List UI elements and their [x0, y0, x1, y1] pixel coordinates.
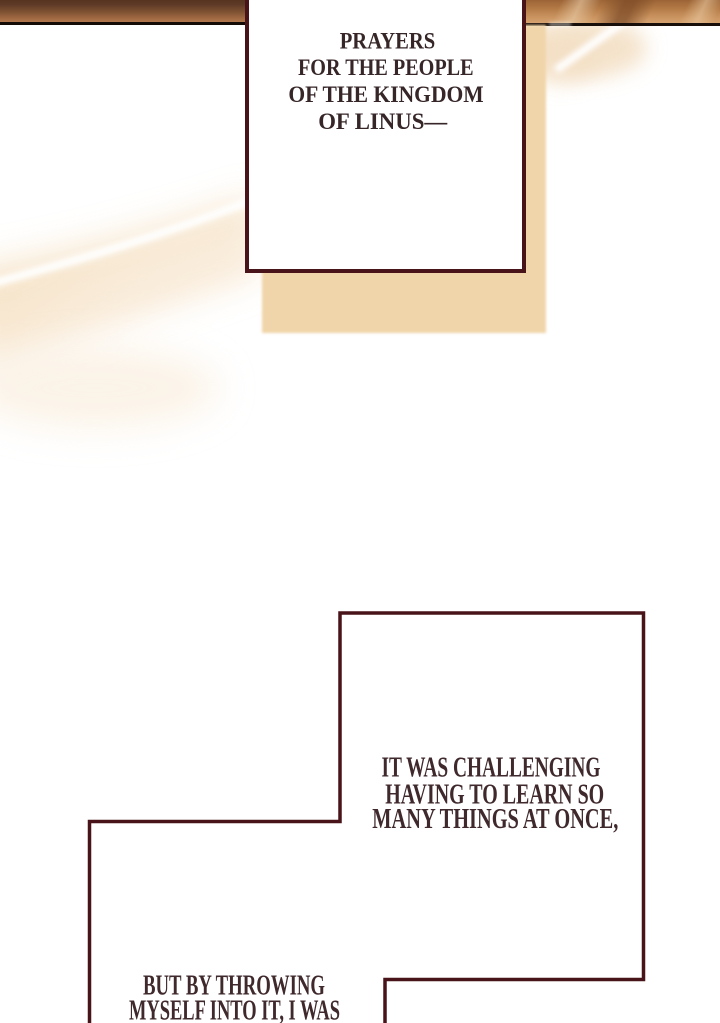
svg-text:FOR THE PEOPLE: FOR THE PEOPLE: [298, 55, 474, 80]
svg-text:MYSELF INTO IT, I WAS: MYSELF INTO IT, I WAS: [129, 995, 340, 1023]
svg-text:OF THE KINGDOM: OF THE KINGDOM: [288, 82, 484, 107]
svg-text:OF LINUS—: OF LINUS—: [318, 109, 448, 134]
svg-text:MANY THINGS AT ONCE,: MANY THINGS AT ONCE,: [372, 804, 618, 835]
svg-text:PRAYERS: PRAYERS: [340, 28, 436, 53]
